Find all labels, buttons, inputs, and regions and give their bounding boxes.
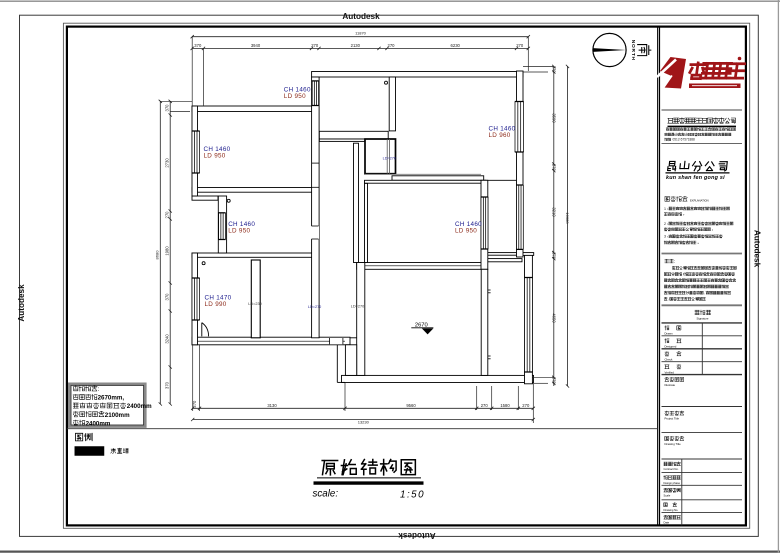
svg-text:270: 270 <box>165 211 170 219</box>
svg-text:2: 2 <box>664 222 666 226</box>
svg-text:370: 370 <box>551 66 556 74</box>
svg-text:1:50: 1:50 <box>400 490 425 501</box>
svg-text:Signature: Signature <box>697 316 709 320</box>
svg-text:9560: 9560 <box>406 403 416 408</box>
svg-text::: : <box>98 386 100 393</box>
svg-text:1580: 1580 <box>500 403 510 408</box>
svg-text:2670mm,: 2670mm, <box>98 395 125 402</box>
svg-text:270: 270 <box>551 252 556 260</box>
svg-text:Drawing No.: Drawing No. <box>664 508 679 512</box>
svg-text:2400mm: 2400mm <box>86 420 111 427</box>
svg-text:3590: 3590 <box>551 113 556 123</box>
svg-text:LD=270: LD=270 <box>308 305 321 309</box>
svg-text:2130: 2130 <box>351 43 361 48</box>
svg-text:LD 990: LD 990 <box>205 301 227 308</box>
svg-text:6230: 6230 <box>451 43 461 48</box>
svg-text:270: 270 <box>516 43 524 48</box>
svg-text:370: 370 <box>165 381 170 389</box>
svg-text:Design phase: Design phase <box>664 481 681 485</box>
svg-text:,: , <box>668 297 669 301</box>
svg-text:Verified: Verified <box>665 370 675 374</box>
svg-text:Drawn: Drawn <box>665 332 674 336</box>
svg-text::: : <box>674 259 675 264</box>
svg-text:LD 950: LD 950 <box>204 153 226 160</box>
svg-text:3130: 3130 <box>267 403 277 408</box>
svg-text:Autodesk: Autodesk <box>342 12 380 21</box>
svg-text:2730: 2730 <box>165 158 170 168</box>
svg-text:270: 270 <box>551 377 556 385</box>
svg-text:kun shan fen gong si: kun shan fen gong si <box>666 175 725 181</box>
svg-text:LD 950: LD 950 <box>455 227 477 234</box>
svg-text:11870: 11870 <box>355 31 367 36</box>
svg-text:Scale: Scale <box>664 494 671 498</box>
svg-text:0512-57571888: 0512-57571888 <box>673 138 696 142</box>
svg-text:270: 270 <box>311 43 319 48</box>
svg-text:Illustrate: Illustrate <box>665 383 676 387</box>
svg-text:LD 960: LD 960 <box>489 132 511 139</box>
svg-text:370: 370 <box>165 293 170 301</box>
svg-text:270: 270 <box>481 403 489 408</box>
svg-text:Designed: Designed <box>665 344 677 348</box>
svg-text:EXPLANATION: EXPLANATION <box>690 198 709 202</box>
svg-text:scale:: scale: <box>313 489 339 500</box>
svg-text:8680: 8680 <box>155 250 160 260</box>
svg-text:Date: Date <box>664 521 670 525</box>
svg-text:LD 950: LD 950 <box>228 227 250 234</box>
svg-text:Contract No.: Contract No. <box>664 467 679 471</box>
svg-text:4650: 4650 <box>551 313 556 323</box>
svg-text:Autodesk: Autodesk <box>17 284 26 322</box>
svg-text:3240: 3240 <box>165 334 170 344</box>
svg-text:270: 270 <box>522 403 530 408</box>
svg-text:270: 270 <box>388 43 396 48</box>
svg-text:370: 370 <box>194 43 202 48</box>
svg-text:NORTH: NORTH <box>630 40 636 61</box>
svg-text:3: 3 <box>664 235 666 239</box>
svg-text:LD 950: LD 950 <box>284 93 306 100</box>
svg-text:270: 270 <box>551 164 556 172</box>
svg-text:Check: Check <box>665 357 674 361</box>
svg-text:2100mm: 2100mm <box>105 412 130 419</box>
svg-text:3940: 3940 <box>251 43 261 48</box>
svg-text:370: 370 <box>165 104 170 112</box>
svg-text:,: , <box>704 291 705 295</box>
svg-text:Drawing Title: Drawing Title <box>665 442 682 446</box>
svg-text:Project Title: Project Title <box>665 417 680 421</box>
svg-text:13230: 13230 <box>358 419 370 424</box>
svg-text:LD=270: LD=270 <box>383 157 396 161</box>
svg-text:1: 1 <box>664 207 666 211</box>
svg-text:1980: 1980 <box>165 246 170 256</box>
svg-text:Autodesk: Autodesk <box>753 230 762 268</box>
svg-text:2400mm: 2400mm <box>127 403 152 410</box>
svg-text:Autodesk: Autodesk <box>398 531 436 540</box>
svg-text:LD=230: LD=230 <box>248 302 261 306</box>
svg-text:10680: 10680 <box>565 212 570 224</box>
svg-text:3210: 3210 <box>551 207 556 217</box>
svg-text:LD=270: LD=270 <box>351 304 364 308</box>
